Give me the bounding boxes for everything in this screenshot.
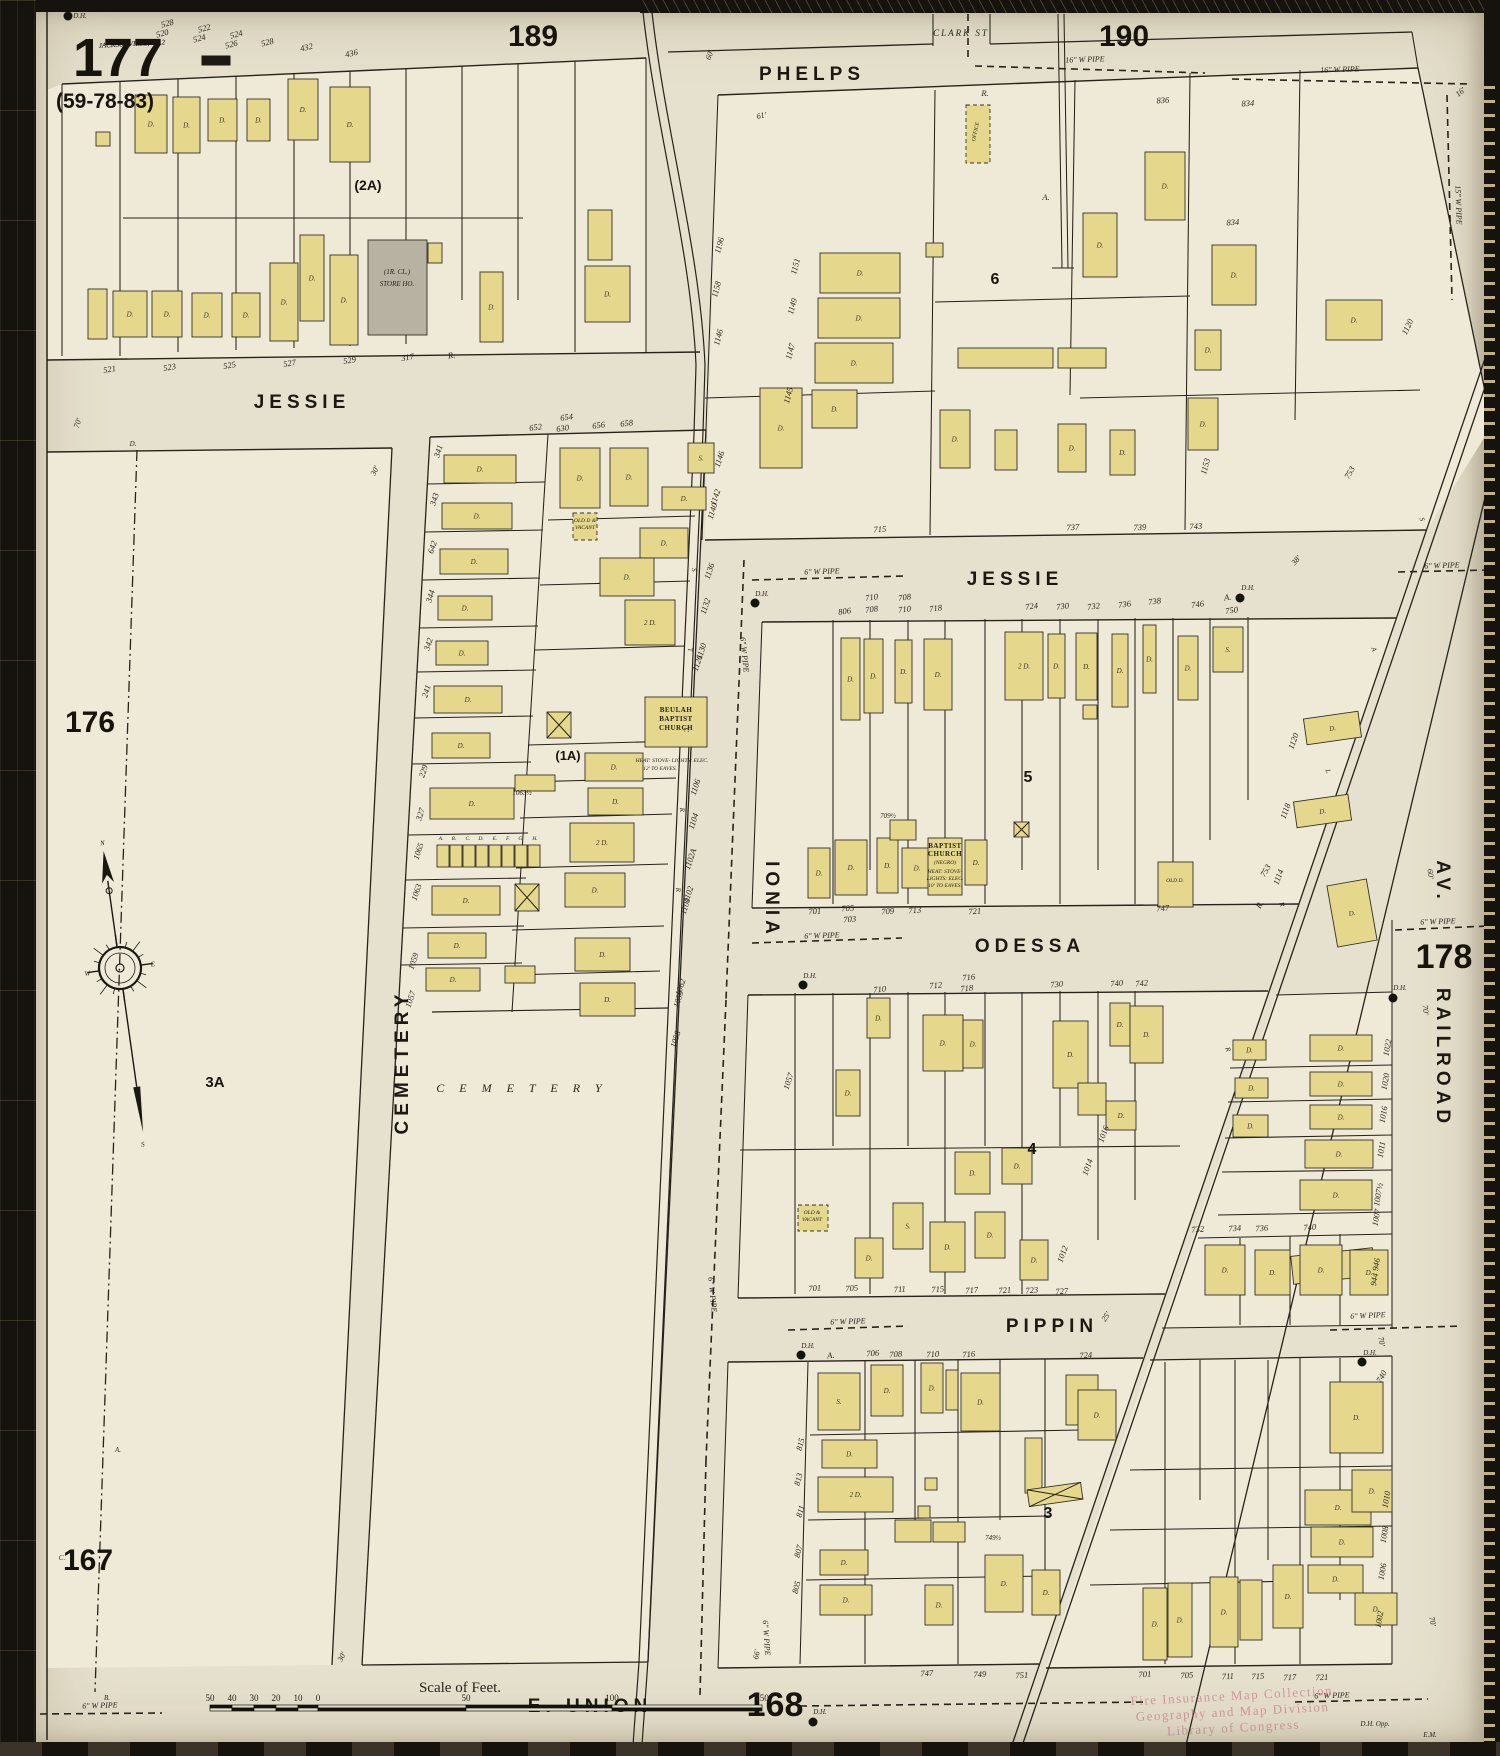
map-annotation: 6" W PIPE bbox=[1420, 916, 1456, 926]
scale-bar-segment bbox=[298, 1705, 318, 1708]
building-use-label: D. bbox=[1176, 1617, 1184, 1625]
building: D. bbox=[877, 838, 898, 893]
building-use-label: D. bbox=[203, 312, 211, 320]
building-use-label: D. bbox=[1220, 1609, 1228, 1617]
sanborn-map-sheet: D.D.D.D.D.D.D.D.D.D.D.D.D.D.D.D.D.D.D.D.… bbox=[0, 0, 1500, 1756]
building-use-label: D. bbox=[1332, 1192, 1340, 1200]
building: D. bbox=[247, 99, 270, 141]
building: D. bbox=[640, 528, 688, 558]
building bbox=[933, 1522, 965, 1542]
house-number: 739 bbox=[1133, 522, 1147, 533]
house-number: 732 bbox=[1087, 600, 1102, 612]
map-annotation: 1063½ bbox=[512, 789, 532, 797]
scale-bar-segment bbox=[612, 1705, 762, 1708]
building: D. bbox=[841, 638, 860, 720]
building-use-label: D. bbox=[453, 942, 461, 950]
map-annotation: D.H. bbox=[1362, 1349, 1377, 1357]
building: D. bbox=[985, 1555, 1023, 1612]
map-annotation: 6" W PIPE bbox=[830, 1316, 866, 1326]
building: D. bbox=[1195, 330, 1221, 370]
house-number: 711 bbox=[1222, 1671, 1235, 1682]
building bbox=[437, 845, 449, 867]
building: 2 D. bbox=[1005, 632, 1043, 700]
building: D. bbox=[1143, 625, 1156, 693]
building: D. bbox=[864, 639, 883, 713]
building-use-label: D. bbox=[1328, 724, 1337, 733]
building-use-label: D. bbox=[847, 864, 855, 872]
building: D. bbox=[1048, 634, 1065, 698]
building: D. bbox=[1330, 1382, 1383, 1453]
house-number: 710 bbox=[898, 603, 913, 615]
map-annotation: 6" W PIPE bbox=[738, 637, 751, 673]
building-use-label: D. bbox=[1347, 909, 1356, 918]
building: D. bbox=[1110, 430, 1135, 475]
building-use-label: D. bbox=[1066, 1051, 1074, 1059]
house-number: 742 bbox=[1135, 977, 1149, 988]
building: D. bbox=[480, 272, 503, 342]
map-annotation: 6" W PIPE bbox=[706, 1277, 719, 1313]
building-use-label: D. bbox=[470, 558, 478, 566]
building-use-label: D. bbox=[1161, 183, 1169, 191]
scale-bar-segment bbox=[276, 1705, 298, 1708]
house-number: 721 bbox=[968, 905, 982, 916]
building-footprint bbox=[489, 845, 501, 867]
map-annotation: 12' TO EAVES. bbox=[643, 766, 677, 772]
map-annotation: D. bbox=[129, 440, 137, 448]
building: D. bbox=[440, 549, 508, 574]
house-number: 712 bbox=[929, 979, 943, 990]
building: D. bbox=[1210, 1577, 1238, 1647]
library-stamp: Fire Insurance Map CollectionGeography a… bbox=[1130, 1683, 1335, 1741]
house-number: 746 bbox=[1191, 598, 1206, 610]
house-number: 724 bbox=[1079, 1349, 1093, 1360]
map-annotation: E.M. bbox=[1422, 1731, 1437, 1739]
building: S. bbox=[1213, 627, 1243, 672]
building-use-label: S. bbox=[905, 1223, 911, 1231]
adjacent-page-number: 167 bbox=[63, 1544, 113, 1577]
building-use-label: D. bbox=[844, 1090, 852, 1098]
house-number: 630 bbox=[556, 422, 571, 434]
building-use-label: D. bbox=[1337, 1045, 1345, 1053]
water-pipe-line bbox=[1330, 1326, 1462, 1330]
building-use-label: D. bbox=[1199, 421, 1207, 429]
building bbox=[96, 132, 110, 146]
building: D. bbox=[925, 1585, 953, 1625]
map-annotation: 25' bbox=[1099, 1310, 1112, 1323]
building-use-label: D. bbox=[1151, 1621, 1159, 1629]
building: D. bbox=[955, 1152, 990, 1194]
scale-bar-segment bbox=[232, 1708, 254, 1711]
scale-number: 100 bbox=[605, 1693, 619, 1703]
page-edge-right-comb bbox=[1484, 86, 1495, 1742]
building: D. bbox=[1273, 1565, 1303, 1628]
building-footprint bbox=[88, 289, 107, 339]
map-annotation: D.H. bbox=[1392, 984, 1407, 992]
building: D. bbox=[1143, 1588, 1167, 1660]
building-use-label: D. bbox=[1245, 1047, 1253, 1055]
building: D. bbox=[820, 1585, 872, 1615]
building: D. bbox=[965, 840, 987, 885]
building: D. bbox=[1233, 1115, 1268, 1137]
house-number: R. bbox=[446, 349, 456, 360]
building: D. bbox=[173, 97, 200, 153]
building-use-label: D. bbox=[147, 121, 155, 129]
building-use-label: S. bbox=[698, 455, 704, 463]
building-footprint bbox=[1025, 1438, 1042, 1493]
scale-bar-segment bbox=[298, 1708, 318, 1711]
map-annotation: 15" W PIPE bbox=[1453, 185, 1463, 225]
building-use-label: D. bbox=[254, 117, 262, 125]
building-use-label: D. bbox=[830, 406, 838, 414]
house-number: 730 bbox=[1056, 600, 1071, 612]
map-annotation: 16" W PIPE bbox=[1065, 54, 1105, 64]
water-pipe-line bbox=[800, 1702, 1148, 1706]
building: S. bbox=[893, 1203, 923, 1249]
building-use-label: D. bbox=[182, 122, 190, 130]
map-annotation: D.H. bbox=[754, 590, 769, 598]
map-annotation: 6" W PIPE bbox=[1350, 1310, 1386, 1321]
hydrant-dot bbox=[1358, 1358, 1367, 1367]
building-footprint bbox=[96, 132, 110, 146]
building: D. bbox=[1233, 1040, 1266, 1060]
house-number: 654 bbox=[560, 411, 575, 423]
building bbox=[1025, 1438, 1042, 1493]
building-use-label: D. bbox=[464, 696, 472, 704]
building-use-label: D. bbox=[1318, 807, 1327, 816]
hydrant-dot bbox=[809, 1718, 818, 1727]
map-annotation: B. bbox=[452, 836, 457, 842]
building: D. bbox=[1205, 1245, 1245, 1295]
building-use-label: D. bbox=[855, 315, 863, 323]
building: D. bbox=[1058, 424, 1086, 472]
building bbox=[428, 243, 442, 263]
scale-bar-segment bbox=[254, 1705, 276, 1708]
street-label-pippin: PIPPIN bbox=[1006, 1316, 1098, 1337]
building: D. bbox=[232, 293, 260, 337]
building: D. bbox=[835, 840, 867, 895]
adjacent-page-number: 176 bbox=[65, 706, 115, 739]
map-annotation: B. bbox=[104, 1694, 110, 1702]
scale-bar-segment bbox=[210, 1705, 232, 1708]
house-number: 751 bbox=[1015, 1670, 1028, 1681]
building-use-label: D. bbox=[850, 360, 858, 368]
building-footprint bbox=[450, 845, 462, 867]
water-pipe-line bbox=[752, 576, 905, 580]
street-label-phelps: PHELPS bbox=[759, 64, 865, 85]
house-number: 736 bbox=[1118, 598, 1133, 610]
building-use-label: D. bbox=[1268, 1269, 1276, 1277]
building-use-label: D. bbox=[1093, 1412, 1101, 1420]
house-number: 721 bbox=[1315, 1672, 1328, 1683]
building-use-label: D. bbox=[1337, 1114, 1345, 1122]
house-number: 701 bbox=[808, 1282, 822, 1293]
house-number: 525 bbox=[222, 359, 236, 371]
house-number: A. bbox=[1222, 592, 1232, 603]
building-use-label: D. bbox=[1082, 663, 1090, 671]
building: D. bbox=[575, 938, 630, 971]
street-label-c-e-m-e-t-e-r-y: C E M E T E R Y bbox=[436, 1081, 607, 1095]
building-use-label: D. bbox=[845, 1451, 853, 1459]
building: D. bbox=[442, 503, 512, 529]
water-pipe-line bbox=[700, 1460, 706, 1695]
block-number: 5 bbox=[1024, 769, 1033, 786]
building-use-label: D. bbox=[346, 121, 354, 129]
building: D. bbox=[330, 255, 358, 345]
building-use-label: D. bbox=[1247, 1085, 1255, 1093]
building-use-label: D. bbox=[1284, 1593, 1292, 1601]
building: D. bbox=[855, 1238, 883, 1278]
building-use-label: D. bbox=[623, 574, 631, 582]
map-annotation: 6" W PIPE bbox=[82, 1700, 118, 1710]
house-number: 716 bbox=[962, 1348, 976, 1359]
house-number: 718 bbox=[960, 982, 974, 993]
building-use-label: D. bbox=[1117, 1112, 1125, 1120]
building-use-label: D. bbox=[1013, 1163, 1021, 1171]
house-number: 740 bbox=[1303, 1221, 1317, 1232]
building: D. bbox=[300, 235, 324, 321]
map-annotation: BAPTIST bbox=[659, 715, 692, 723]
building: D. bbox=[1310, 1072, 1372, 1096]
building-use-label: D. bbox=[242, 312, 250, 320]
water-pipe-line bbox=[1395, 926, 1488, 930]
parcel-line bbox=[1412, 32, 1418, 68]
house-number: 527 bbox=[282, 357, 297, 369]
scale-number: 20 bbox=[272, 1693, 282, 1703]
building-footprint bbox=[918, 1506, 930, 1518]
map-canvas: D.D.D.D.D.D.D.D.D.D.D.D.D.D.D.D.D.D.D.D.… bbox=[0, 0, 1500, 1756]
building bbox=[926, 243, 943, 257]
building-footprint bbox=[933, 1522, 965, 1542]
house-number: 708 bbox=[865, 603, 880, 615]
building-use-label: D. bbox=[1368, 1488, 1376, 1496]
building-use-label: D. bbox=[840, 1559, 848, 1567]
map-annotation: (1R. CL.) bbox=[384, 268, 411, 276]
adjacent-page-number: 189 bbox=[508, 20, 558, 53]
building-use-label: D. bbox=[1338, 1539, 1346, 1547]
building bbox=[918, 1506, 930, 1518]
house-number: 317 bbox=[399, 351, 415, 363]
building-use-label: D. bbox=[476, 466, 484, 474]
building: D. bbox=[895, 640, 912, 703]
building: D. bbox=[1112, 634, 1128, 707]
house-number: 718 bbox=[929, 602, 944, 614]
building-use-label: D. bbox=[1230, 272, 1238, 280]
building-use-label: D. bbox=[218, 117, 226, 125]
water-pipe-line bbox=[975, 66, 1205, 73]
building-footprint bbox=[502, 845, 514, 867]
building: D. bbox=[580, 983, 635, 1016]
building-use-label: D. bbox=[1118, 449, 1126, 457]
map-annotation: D.H. bbox=[802, 972, 817, 980]
scale-number: 50 bbox=[462, 1693, 472, 1703]
scale-number: 10 bbox=[294, 1693, 304, 1703]
building-use-label: D. bbox=[1352, 1414, 1360, 1422]
building-use-label: D. bbox=[299, 106, 307, 114]
map-annotation: 70' bbox=[72, 417, 84, 429]
building-use-label: D. bbox=[1000, 1580, 1008, 1588]
hydrant-dot bbox=[797, 1351, 806, 1360]
building bbox=[547, 712, 571, 738]
block-number: (1A) bbox=[555, 748, 580, 763]
building: D. bbox=[1327, 879, 1377, 947]
scale-bar-segment bbox=[318, 1705, 466, 1708]
water-pipe-line bbox=[1398, 570, 1488, 572]
building: D. bbox=[208, 99, 237, 141]
map-annotation: D.H. Opp. bbox=[1359, 1720, 1389, 1728]
house-number: 713 bbox=[908, 904, 922, 915]
building-use-label: D. bbox=[951, 436, 959, 444]
building: D. bbox=[1350, 1250, 1388, 1295]
building-use-label: D. bbox=[1116, 667, 1124, 675]
building: D. bbox=[923, 1015, 963, 1071]
building-use-label: D. bbox=[1068, 445, 1076, 453]
building-use-label: D. bbox=[1246, 1123, 1254, 1131]
building: 2 D. bbox=[818, 1477, 893, 1512]
building: D. bbox=[1300, 1245, 1342, 1295]
building-use-label: D. bbox=[680, 495, 688, 503]
building bbox=[502, 845, 514, 867]
building-use-label: D. bbox=[1184, 665, 1192, 673]
map-annotation: 6" W PIPE bbox=[1424, 560, 1460, 570]
building: D. bbox=[1188, 398, 1218, 450]
building: D. bbox=[192, 293, 222, 337]
map-annotation: OLD D & bbox=[574, 518, 597, 524]
house-number: 521 bbox=[102, 363, 116, 375]
building-use-label: D. bbox=[163, 311, 171, 319]
house-number: 716 bbox=[962, 971, 976, 982]
map-annotation: 6" W PIPE bbox=[804, 566, 840, 576]
street-label-railroad: RAILROAD bbox=[1432, 988, 1453, 1128]
building bbox=[946, 1370, 958, 1410]
scale-number: 40 bbox=[228, 1693, 238, 1703]
building-footprint bbox=[946, 1370, 958, 1410]
building: D. bbox=[1235, 1078, 1268, 1098]
map-annotation: OLD D. bbox=[1166, 878, 1184, 884]
house-number: 743 bbox=[1189, 521, 1202, 532]
building-footprint bbox=[1240, 1580, 1262, 1640]
building-use-label: D. bbox=[1334, 1504, 1342, 1512]
map-annotation: CHURCH bbox=[659, 724, 693, 732]
building-footprint bbox=[925, 1478, 937, 1490]
house-number: 526 bbox=[224, 37, 240, 50]
building: D. bbox=[1311, 1527, 1373, 1557]
building-use-label: D. bbox=[462, 897, 470, 905]
street-label-ionia: IONIA bbox=[761, 861, 782, 939]
map-annotation: 70' bbox=[1427, 1616, 1438, 1628]
house-number: 703 bbox=[843, 913, 857, 924]
house-number: 709 bbox=[881, 905, 895, 916]
scale-bar-segment bbox=[210, 1708, 232, 1711]
building: D. bbox=[1326, 300, 1382, 340]
building bbox=[463, 845, 475, 867]
building-footprint bbox=[958, 348, 1053, 368]
house-number: 1132 bbox=[698, 596, 713, 615]
house-number: 727 bbox=[1055, 1285, 1069, 1296]
house-number: 723 bbox=[1025, 1284, 1039, 1295]
map-annotation: D.H. bbox=[1240, 584, 1255, 592]
building-use-label: D. bbox=[603, 996, 611, 1004]
map-annotation: LIGHTS: ELEC. bbox=[926, 876, 964, 882]
building: D. bbox=[1255, 1250, 1290, 1295]
scale-bar-segment bbox=[254, 1708, 276, 1711]
building: D. bbox=[961, 1373, 1000, 1431]
building: D. bbox=[436, 641, 488, 665]
building: D. bbox=[921, 1363, 943, 1413]
building-use-label: D. bbox=[842, 1597, 850, 1605]
building-use-label: D. bbox=[340, 297, 348, 305]
house-number: 436 bbox=[344, 47, 359, 60]
scale-bar-segment bbox=[612, 1708, 762, 1711]
building: D. bbox=[1083, 213, 1117, 277]
block-number: 3 bbox=[1044, 1505, 1053, 1522]
building: D. bbox=[560, 448, 600, 508]
building: D. bbox=[1310, 1105, 1372, 1129]
building: D. bbox=[432, 733, 490, 758]
scale-bar-segment bbox=[466, 1708, 612, 1711]
house-number: 721 bbox=[998, 1284, 1012, 1295]
house-number: 715 bbox=[873, 524, 886, 535]
building: D. bbox=[820, 253, 900, 293]
water-pipe-line bbox=[40, 1713, 162, 1714]
house-number: 432 bbox=[299, 41, 314, 54]
building-footprint bbox=[476, 845, 488, 867]
building-footprint bbox=[995, 430, 1017, 470]
building: D. bbox=[924, 639, 952, 710]
scale-bar-segment bbox=[276, 1708, 298, 1711]
house-number: 715 bbox=[1251, 1671, 1264, 1682]
house-number: 705 bbox=[845, 1282, 859, 1293]
building: D. bbox=[434, 686, 502, 713]
building-use-label: 2 D. bbox=[849, 1491, 861, 1499]
building-use-label: D. bbox=[473, 513, 481, 521]
map-annotation: 16" W PIPE bbox=[1320, 64, 1360, 74]
building: D. bbox=[600, 558, 654, 596]
block-number: 3A bbox=[205, 1074, 224, 1091]
adjacent-page-number: 178 bbox=[1416, 938, 1473, 976]
street-label-odessa: ODESSA bbox=[975, 936, 1085, 957]
building-use-label: D. bbox=[1331, 1576, 1339, 1584]
building-use-label: D. bbox=[458, 650, 466, 658]
map-annotation: 16' bbox=[1454, 85, 1467, 98]
building-use-label: D. bbox=[591, 887, 599, 895]
house-number: 834 bbox=[1226, 217, 1240, 228]
building-use-label: D. bbox=[934, 671, 942, 679]
building: D. bbox=[930, 1222, 965, 1272]
building-use-label: D. bbox=[457, 742, 465, 750]
building-use-label: D. bbox=[939, 1040, 947, 1048]
building: S. bbox=[818, 1373, 860, 1430]
street-label-jessie: JESSIE bbox=[254, 392, 351, 413]
building bbox=[450, 845, 462, 867]
building-footprint bbox=[528, 845, 540, 867]
building: D. bbox=[1212, 245, 1256, 305]
building-use-label: D. bbox=[603, 291, 611, 299]
building-footprint bbox=[515, 845, 527, 867]
building-use-label: D. bbox=[1221, 1267, 1229, 1275]
building: D. bbox=[1310, 1035, 1372, 1061]
building: D. bbox=[585, 266, 630, 322]
building: 2 D. bbox=[625, 600, 675, 645]
building-footprint bbox=[1158, 862, 1193, 907]
building bbox=[1083, 705, 1097, 719]
building-use-label: D. bbox=[928, 1385, 936, 1393]
water-pipe-line bbox=[788, 1326, 908, 1330]
building-use-label: D. bbox=[976, 1399, 984, 1407]
building bbox=[925, 1478, 937, 1490]
building bbox=[1058, 348, 1106, 368]
map-annotation: G. bbox=[518, 836, 523, 842]
house-number: 705 bbox=[1180, 1670, 1193, 1681]
